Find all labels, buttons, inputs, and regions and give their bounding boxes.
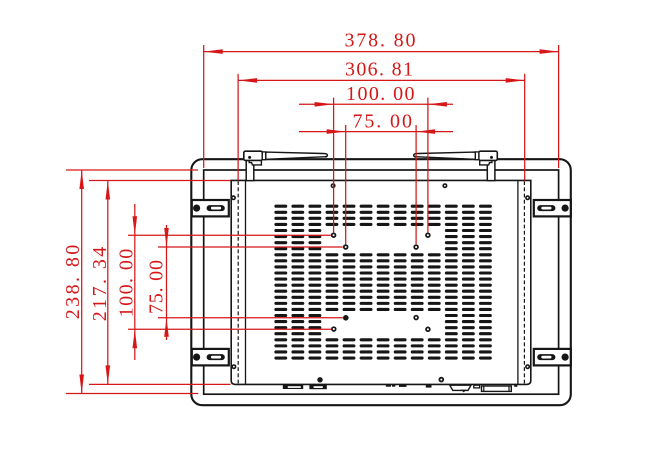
svg-text:100. 00: 100. 00 bbox=[346, 83, 415, 105]
svg-text:238. 80: 238. 80 bbox=[62, 245, 84, 320]
svg-text:75. 00: 75. 00 bbox=[146, 260, 168, 314]
svg-text:75. 00: 75. 00 bbox=[352, 110, 412, 132]
svg-text:306. 81: 306. 81 bbox=[345, 59, 413, 81]
svg-text:378. 80: 378. 80 bbox=[345, 30, 416, 52]
